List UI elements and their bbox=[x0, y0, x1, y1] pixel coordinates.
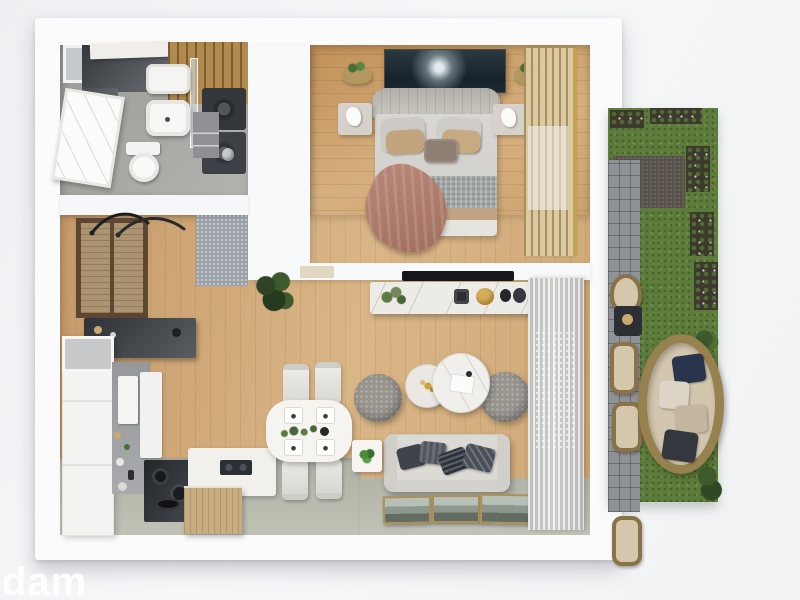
console-plant bbox=[378, 284, 408, 308]
bathroom-shelf bbox=[90, 41, 171, 60]
bedroom-wall-art bbox=[384, 49, 506, 93]
decor-bottle bbox=[172, 328, 181, 337]
nightstand bbox=[338, 103, 372, 135]
frying-pan bbox=[156, 498, 180, 510]
flower-bed bbox=[694, 262, 718, 310]
coat-hooks bbox=[88, 203, 192, 239]
sink-drain bbox=[165, 117, 170, 122]
side-table-plant bbox=[357, 446, 377, 465]
console-candle bbox=[454, 289, 469, 304]
flower-bed bbox=[690, 212, 714, 256]
outdoor-pillow-dark bbox=[661, 429, 699, 463]
garden bbox=[608, 108, 718, 502]
kitchen-accessory bbox=[118, 482, 127, 491]
garden-bush bbox=[696, 464, 724, 504]
planter-leaves bbox=[346, 60, 368, 76]
sofa-armrest bbox=[384, 434, 397, 492]
flower-bed bbox=[686, 146, 710, 192]
trash-bin bbox=[222, 148, 234, 161]
partition-wall bbox=[248, 45, 310, 280]
bathroom-cabinet bbox=[193, 112, 219, 158]
window-gold-frame bbox=[573, 48, 577, 256]
leaning-art-frame bbox=[480, 494, 533, 525]
dining-chair bbox=[315, 362, 341, 404]
dining-chair bbox=[316, 459, 342, 499]
bedroom-door-threshold bbox=[300, 266, 334, 278]
wall-planter bbox=[342, 64, 372, 84]
wall-cabinet bbox=[140, 372, 162, 458]
floor-plan-render: dam bbox=[0, 0, 800, 600]
wicker-chair bbox=[612, 516, 642, 566]
bed-pillow-beige bbox=[385, 129, 425, 156]
console-vase bbox=[513, 288, 526, 303]
kitchen-accessory bbox=[114, 432, 121, 439]
flower-bed bbox=[610, 110, 644, 128]
decor-bowl bbox=[94, 326, 102, 334]
wicker-chair bbox=[610, 342, 638, 394]
gold-bowl bbox=[476, 288, 494, 305]
place-setting bbox=[284, 407, 303, 424]
cooktop bbox=[220, 460, 252, 475]
glass-door-curtain bbox=[528, 278, 584, 530]
throw-pillow bbox=[462, 443, 497, 474]
bed-accent-pillow bbox=[424, 139, 458, 163]
kitchen-island bbox=[184, 488, 242, 534]
floor-plant bbox=[252, 266, 298, 322]
side-table bbox=[352, 440, 382, 472]
leaning-art-frame bbox=[432, 495, 480, 523]
sheer-curtain bbox=[528, 126, 568, 210]
cooking-pot bbox=[152, 468, 169, 485]
outdoor-table bbox=[614, 306, 642, 336]
curtain-shimmer bbox=[534, 330, 578, 450]
leaning-art-frame bbox=[383, 496, 431, 525]
coffee-table bbox=[432, 353, 490, 413]
wall-cabinet bbox=[118, 376, 138, 424]
figurine-lamp bbox=[346, 107, 361, 126]
sofa bbox=[384, 434, 510, 492]
toilet bbox=[129, 153, 159, 182]
dining-table bbox=[266, 400, 352, 462]
figurine-lamp bbox=[501, 108, 516, 127]
watermark: dam bbox=[2, 560, 142, 600]
kitchen-accessory bbox=[116, 458, 124, 466]
flower-bed bbox=[650, 108, 702, 124]
nightstand bbox=[493, 104, 527, 135]
place-setting bbox=[316, 439, 335, 456]
center-bowl bbox=[320, 427, 329, 436]
media-console bbox=[370, 282, 536, 314]
console-vase bbox=[500, 289, 511, 302]
dining-chair bbox=[282, 460, 308, 500]
place-setting bbox=[284, 439, 303, 456]
kitchen-accessory bbox=[128, 470, 134, 480]
paver-path bbox=[608, 160, 640, 512]
garland-centerpiece bbox=[277, 422, 320, 441]
table-decor bbox=[466, 371, 472, 377]
round-wicker-sofa bbox=[638, 334, 724, 474]
table-book bbox=[449, 373, 475, 394]
wall-tv bbox=[402, 271, 514, 281]
outdoor-pillow bbox=[674, 404, 708, 434]
washbasin bbox=[146, 64, 190, 94]
kitchen-cabinet-niche bbox=[62, 336, 114, 372]
sofa-armrest bbox=[497, 434, 510, 492]
outdoor-kettle bbox=[622, 314, 633, 325]
kitchen-accessory bbox=[124, 444, 130, 450]
floor-pouf bbox=[354, 374, 402, 422]
